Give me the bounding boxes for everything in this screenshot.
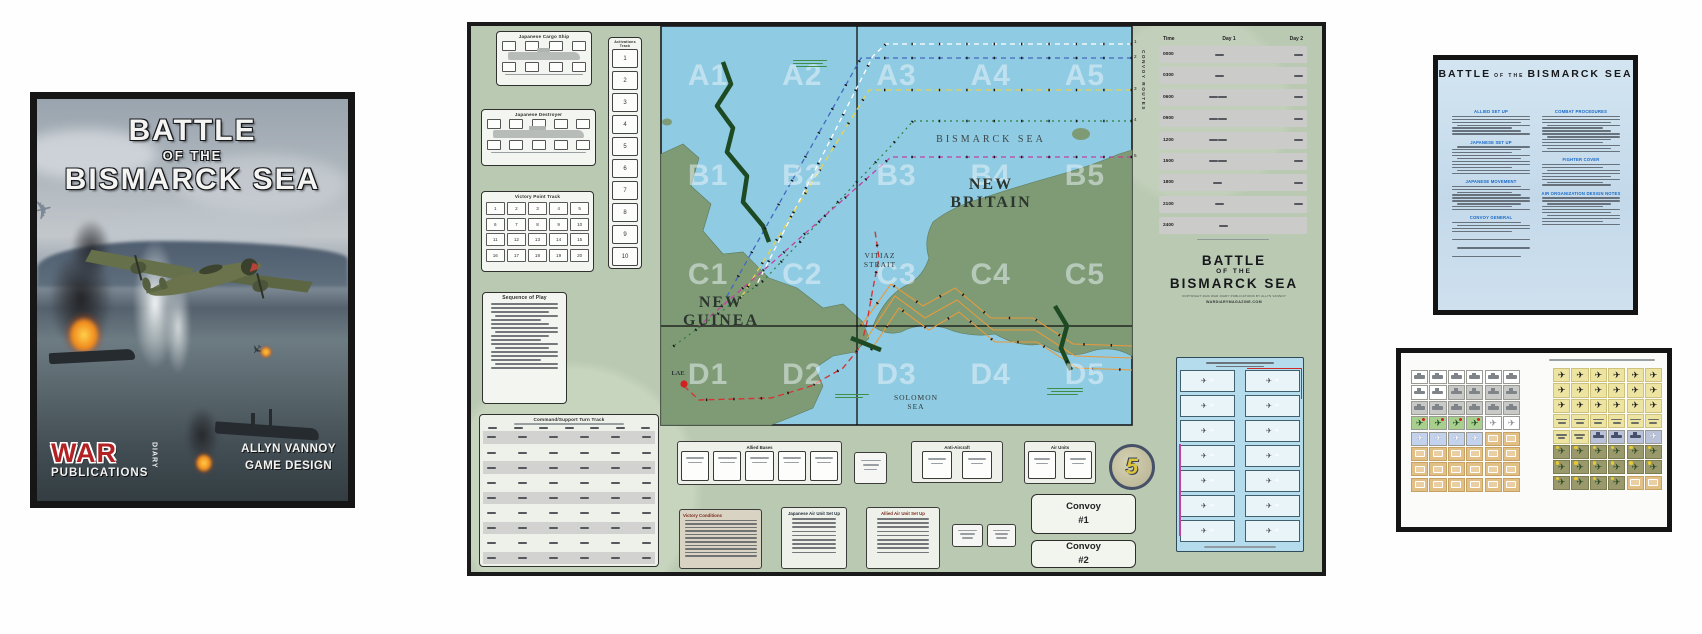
japanese-aircraft-counter: ✈ — [1411, 416, 1428, 430]
aircraft-icon: ✈ — [1201, 503, 1207, 510]
japanese-floatplane-counter: ✈ — [1448, 432, 1465, 446]
allied-aircraft-icon: ✈ — [1650, 401, 1658, 410]
allied-aircraft-icon: ✈ — [1576, 371, 1584, 380]
activations-track-title: Activations Track — [612, 40, 638, 48]
bomber-icon: ✈ — [1595, 478, 1603, 487]
marker-counter — [1553, 414, 1570, 428]
route-number: 2 — [1134, 54, 1137, 59]
allied-bomber-counter: ✈ — [1571, 445, 1588, 459]
barge-icon — [1451, 466, 1461, 473]
ship-icon — [1469, 375, 1480, 379]
turn-record-col-day1: Day 1 — [1189, 36, 1269, 42]
ship-icon — [1506, 375, 1517, 379]
allied-bomber-counter: ✈ — [1645, 460, 1662, 474]
base-box — [713, 451, 741, 481]
vp-cell: 18 — [528, 249, 547, 262]
map-annotation — [793, 58, 827, 67]
command-support-row — [483, 507, 655, 520]
activations-track-cells: 12345678910 — [612, 49, 638, 266]
publisher-logo: WAR PUBLICATIONS DIARY — [51, 440, 157, 479]
barge-icon — [1506, 450, 1516, 457]
rules-title-line1: BATTLE — [1438, 69, 1491, 80]
turn-record-row: 0900 — [1159, 110, 1307, 127]
vp-cell: 11 — [486, 233, 505, 246]
allied-aircraft-counter: ✈ — [1608, 383, 1625, 397]
ship-icon — [1630, 435, 1641, 439]
allied-aircraft-icon: ✈ — [1595, 401, 1603, 410]
cargo-ship-panel: Japanese Cargo Ship — [496, 31, 592, 86]
vp-cell: 12 — [507, 233, 526, 246]
ship-icon — [1414, 406, 1425, 410]
allied-ship-counter — [1627, 430, 1644, 444]
game-map-board: A1A2A3A4A5B1B2B3B4B5C1C2C3C4C5D1D2D3D4D5… — [467, 22, 1326, 576]
solomon-sea-label: SOLOMON SEA — [885, 394, 947, 411]
allied-aircraft-counter: ✈ — [1645, 430, 1662, 444]
allied-aircraft-counter: ✈ — [1553, 368, 1570, 382]
vp-cell: 13 — [528, 233, 547, 246]
japanese-aircraft-icon: ✈ — [1471, 419, 1479, 428]
allied-aircraft-counter: ✈ — [1645, 368, 1662, 382]
allied-bomber-counter: ✈ — [1590, 445, 1607, 459]
cover-title: BATTLE OF THE BISMARCK SEA — [37, 115, 348, 196]
command-support-row — [483, 522, 655, 535]
unit-box — [1028, 451, 1056, 479]
map-title-line3: BISMARCK SEA — [1161, 277, 1307, 291]
vp-cell: 17 — [507, 249, 526, 262]
allied-bases-title: Allied Bases — [681, 445, 838, 450]
allied-bomber-counter: ✈ — [1590, 460, 1607, 474]
barge-icon — [1415, 450, 1425, 457]
convoy-1-number: #1 — [1078, 514, 1089, 528]
rules-heading: Convoy General — [1450, 215, 1532, 220]
bomber-icon: ✈ — [1631, 447, 1639, 456]
arrow-icon: ➔ — [1209, 428, 1214, 434]
japanese-aircraft-icon: ✈ — [1416, 419, 1424, 428]
aircraft-icon: ✈ — [1508, 419, 1516, 428]
barge-icon — [1415, 466, 1425, 473]
barge-counter — [1485, 447, 1502, 461]
air-unit-cell: ✈➔ — [1245, 445, 1300, 467]
sequence-of-play-panel: Sequence of Play — [482, 292, 567, 404]
allied-aircraft-icon: ✈ — [1595, 386, 1603, 395]
air-unit-cell: ✈➔ — [1180, 420, 1235, 442]
command-support-row — [483, 431, 655, 444]
turn-record-col-day2: Day 2 — [1269, 36, 1303, 42]
ship-icon — [1469, 406, 1480, 410]
turn-record-row: 1800 — [1159, 174, 1307, 191]
allied-bomber-counter: ✈ — [1608, 476, 1625, 490]
air-unit-cell: ✈➔ — [1245, 520, 1300, 542]
fire-art — [193, 451, 215, 475]
activation-cell: 8 — [612, 203, 638, 222]
bomber-icon: ✈ — [1650, 463, 1658, 472]
rules-right-column: Combat Procedures Fighter Cover Air Orga… — [1539, 104, 1623, 225]
allied-aircraft-counter: ✈ — [1571, 383, 1588, 397]
marker-counter — [1608, 414, 1625, 428]
bomber-icon: ✈ — [1613, 463, 1621, 472]
arrow-icon: ➔ — [1209, 378, 1214, 384]
map-title-block: BATTLE OF THE BISMARCK SEA COPYRIGHT 202… — [1161, 254, 1307, 304]
vp-cell: 20 — [570, 249, 589, 262]
aircraft-icon: ✈ — [1266, 478, 1272, 485]
barge-icon — [1433, 481, 1443, 488]
air-unit-cell: ✈➔ — [1180, 470, 1235, 492]
barge-icon — [1648, 479, 1658, 486]
barge-counter — [1466, 447, 1483, 461]
allied-bomber-counter: ✈ — [1627, 460, 1644, 474]
allied-aircraft-counter: ✈ — [1627, 383, 1644, 397]
aircraft-icon: ✈ — [1201, 453, 1207, 460]
barge-icon — [1415, 481, 1425, 488]
bomber-icon: ✈ — [1558, 478, 1566, 487]
barge-icon — [1488, 450, 1498, 457]
allied-bomber-counter: ✈ — [1645, 445, 1662, 459]
turn-record-table: Time Day 1 Day 2 0000 0300 0600 0900 120… — [1159, 34, 1307, 240]
barge-counter — [1485, 462, 1502, 476]
barge-counter — [1485, 432, 1502, 446]
cover-title-line1: BATTLE — [37, 115, 348, 147]
command-support-row — [483, 476, 655, 489]
marker-box — [952, 524, 983, 547]
barge-icon — [1470, 450, 1480, 457]
cargo-ship-silhouette — [508, 52, 580, 60]
destroyer-art — [215, 421, 320, 440]
command-support-row — [483, 552, 655, 565]
allied-aircraft-icon: ✈ — [1576, 386, 1584, 395]
convoy-1-label: Convoy — [1066, 500, 1101, 514]
vp-cell: 10 — [570, 218, 589, 231]
air-units-title: Air Units — [1028, 445, 1092, 450]
command-support-row — [483, 492, 655, 505]
air-unit-cell: ✈➔ — [1180, 495, 1235, 517]
barge-icon — [1451, 481, 1461, 488]
convoy-1-box: Convoy #1 — [1031, 494, 1136, 534]
ship-icon — [1488, 375, 1499, 379]
japanese-aircraft-counter: ✈ — [1429, 416, 1446, 430]
rules-title-line2: OF THE — [1494, 74, 1524, 79]
rules-heading: Japanese Movement — [1450, 179, 1532, 184]
rules-heading: Combat Procedures — [1539, 109, 1623, 114]
allied-bomber-counter: ✈ — [1571, 460, 1588, 474]
magenta-bracket — [1179, 444, 1181, 536]
japanese-floatplane-counter: ✈ — [1429, 432, 1446, 446]
aircraft-counter: ✈ — [1503, 416, 1520, 430]
product-gallery: BATTLE OF THE BISMARCK SEA — [0, 0, 1702, 634]
aircraft-icon: ✈ — [1201, 378, 1207, 385]
ship-counter-damaged — [1448, 385, 1465, 399]
allied-aircraft-counter: ✈ — [1627, 399, 1644, 413]
rules-heading: Japanese Set Up — [1450, 140, 1532, 145]
ship-icon — [1506, 406, 1517, 410]
barge-icon — [1630, 479, 1640, 486]
turn-record-row: 0300 — [1159, 67, 1307, 84]
turn-record-header: Time Day 1 Day 2 — [1159, 36, 1307, 42]
air-units-chart: ✈➔✈➔✈➔✈➔✈➔✈➔✈➔✈➔✈➔✈➔✈➔✈➔✈➔✈➔ — [1176, 357, 1304, 552]
ship-icon — [1593, 435, 1604, 439]
air-unit-cell: ✈➔ — [1245, 470, 1300, 492]
ship-counter-damaged — [1448, 401, 1465, 415]
marker-counter — [1645, 414, 1662, 428]
vp-cell: 7 — [507, 218, 526, 231]
barge-counter — [1448, 478, 1465, 492]
ship-counter — [1466, 370, 1483, 384]
publisher-diary-text: DIARY — [150, 442, 157, 469]
vp-cell: 15 — [570, 233, 589, 246]
aircraft-icon: ✈ — [1201, 528, 1207, 535]
destroyer-silhouette — [493, 130, 584, 138]
publisher-publications-text: PUBLICATIONS — [51, 467, 148, 479]
activation-cell: 7 — [612, 181, 638, 200]
vp-cell: 1 — [486, 202, 505, 215]
bomber-icon: ✈ — [1558, 463, 1566, 472]
barge-counter — [1429, 447, 1446, 461]
destroyer-panel: Japanese Destroyer — [481, 109, 596, 166]
ship-icon — [1469, 391, 1480, 395]
activation-cell: 1 — [612, 49, 638, 68]
ship-icon — [1432, 391, 1443, 395]
allied-aircraft-icon: ✈ — [1650, 371, 1658, 380]
allied-aircraft-counter: ✈ — [1627, 368, 1644, 382]
activation-cell: 6 — [612, 159, 638, 178]
turn-record-row: 2100 — [1159, 196, 1307, 213]
ship-counter-damaged — [1466, 385, 1483, 399]
japanese-setup-box: Japanese Air Unit Set Up — [781, 507, 847, 569]
bomber-icon: ✈ — [1576, 478, 1584, 487]
counter-sheet-header — [1549, 359, 1655, 361]
rules-heading: Allied Set Up — [1450, 109, 1532, 114]
base-box — [681, 451, 709, 481]
vp-cell: 8 — [528, 218, 547, 231]
bismarck-sea-label: BISMARCK SEA — [901, 134, 1081, 146]
victory-point-track-panel: Victory Point Track 12345678910111213141… — [481, 191, 594, 272]
allied-aircraft-icon: ✈ — [1558, 386, 1566, 395]
barge-counter — [1627, 476, 1644, 490]
ship-counter — [1503, 370, 1520, 384]
ship-counter — [1448, 370, 1465, 384]
command-support-row — [483, 446, 655, 459]
vp-cell: 2 — [507, 202, 526, 215]
map-title-line2: OF THE — [1161, 269, 1307, 276]
cargo-ship-panel-title: Japanese Cargo Ship — [500, 34, 588, 39]
barge-counter — [1448, 447, 1465, 461]
bomber-icon: ✈ — [1576, 447, 1584, 456]
floatplane-icon: ✈ — [1434, 434, 1442, 443]
aircraft-icon: ✈ — [1201, 478, 1207, 485]
route-number: 3 — [1134, 86, 1137, 91]
allied-aircraft-counter: ✈ — [1608, 368, 1625, 382]
allied-bomber-counter: ✈ — [1608, 460, 1625, 474]
barge-counter — [1645, 476, 1662, 490]
barge-counter — [1503, 478, 1520, 492]
aircraft-icon: ✈ — [1650, 432, 1658, 441]
sequence-of-play-title: Sequence of Play — [486, 295, 563, 301]
convoy-2-number: #2 — [1078, 554, 1089, 568]
route-number: 5 — [1134, 153, 1137, 158]
aircraft-icon: ✈ — [1201, 428, 1207, 435]
ship-counter-damaged — [1466, 401, 1483, 415]
map-title-line1: BATTLE — [1161, 254, 1307, 268]
ship-counter-damaged — [1503, 401, 1520, 415]
turn-record-row: 1500 — [1159, 153, 1307, 170]
air-unit-cell: ✈➔ — [1180, 370, 1235, 392]
b25-bomber-art — [65, 187, 333, 347]
box-cover: BATTLE OF THE BISMARCK SEA — [30, 92, 355, 508]
ship-counter-damaged — [1485, 401, 1502, 415]
barge-counter — [1466, 462, 1483, 476]
designer-name: ALLYN VANNOY — [241, 441, 336, 458]
designer-role: GAME DESIGN — [241, 458, 336, 475]
ship-counter — [1411, 370, 1428, 384]
activation-cell: 9 — [612, 225, 638, 244]
base-box — [810, 451, 838, 481]
barge-counter — [1503, 462, 1520, 476]
ship-icon — [1488, 391, 1499, 395]
barge-icon — [1488, 481, 1498, 488]
air-unit-cell: ✈➔ — [1180, 520, 1235, 542]
rules-title: BATTLE OF THE BISMARCK SEA — [1438, 69, 1633, 80]
arrow-icon: ➔ — [1274, 453, 1279, 459]
new-britain-label: NEW BRITAIN — [926, 176, 1056, 213]
anti-aircraft-title: Anti-Aircraft — [915, 445, 999, 450]
ship-icon — [1611, 435, 1622, 439]
activation-cell: 10 — [612, 247, 638, 266]
vp-cell: 3 — [528, 202, 547, 215]
barge-counter — [1485, 478, 1502, 492]
allied-aircraft-counter: ✈ — [1590, 399, 1607, 413]
ship-counter — [1411, 385, 1428, 399]
aircraft-icon: ✈ — [1266, 528, 1272, 535]
counter-block-ships: ✈✈✈✈ ✈✈ ✈✈✈✈ — [1411, 370, 1520, 493]
bomber-icon: ✈ — [1558, 447, 1566, 456]
barge-counter — [1466, 478, 1483, 492]
allied-bomber-counter: ✈ — [1553, 476, 1570, 490]
vp-cell: 4 — [549, 202, 568, 215]
fifth-air-force-emblem: 5 — [1109, 444, 1155, 490]
allied-bases-box: Allied Bases — [677, 441, 842, 485]
ship-icon — [1506, 391, 1517, 395]
bomber-icon: ✈ — [1595, 447, 1603, 456]
marker-counter — [1553, 430, 1570, 444]
cover-title-line2: OF THE — [37, 149, 348, 163]
allied-bomber-counter: ✈ — [1571, 476, 1588, 490]
activation-cell: 5 — [612, 137, 638, 156]
arrow-icon: ➔ — [1274, 403, 1279, 409]
victory-conditions-box: Victory Conditions — [679, 509, 762, 569]
aa-box — [962, 451, 992, 479]
air-unit-cell: ✈➔ — [1180, 395, 1235, 417]
base-box-single — [854, 452, 887, 484]
allied-aircraft-icon: ✈ — [1613, 386, 1621, 395]
allied-bomber-counter: ✈ — [1553, 460, 1570, 474]
barge-icon — [1506, 435, 1516, 442]
bomber-icon: ✈ — [1650, 447, 1658, 456]
allied-bomber-counter: ✈ — [1590, 476, 1607, 490]
arrow-icon: ➔ — [1274, 528, 1279, 534]
turn-record-row: 2400 — [1159, 217, 1307, 234]
allied-aircraft-counter: ✈ — [1608, 399, 1625, 413]
allied-aircraft-counter: ✈ — [1645, 383, 1662, 397]
ship-counter-damaged — [1411, 401, 1428, 415]
marker-counter — [1571, 430, 1588, 444]
bomber-icon: ✈ — [1631, 463, 1639, 472]
allied-aircraft-icon: ✈ — [1631, 386, 1639, 395]
allied-setup-title: Allied Air Unit Set Up — [870, 511, 936, 516]
allied-aircraft-icon: ✈ — [1650, 386, 1658, 395]
barge-counter — [1448, 462, 1465, 476]
barge-counter — [1503, 447, 1520, 461]
allied-aircraft-counter: ✈ — [1590, 383, 1607, 397]
command-support-row — [483, 461, 655, 474]
allied-aircraft-icon: ✈ — [1558, 401, 1566, 410]
barge-icon — [1506, 481, 1516, 488]
barge-icon — [1470, 466, 1480, 473]
floatplane-icon: ✈ — [1471, 434, 1479, 443]
air-units-box: Air Units — [1024, 441, 1096, 484]
rules-heading: Air Organization Design Notes — [1539, 191, 1623, 196]
map-website: WARDIARYMAGAZINE.COM — [1161, 300, 1307, 304]
ship-icon — [1414, 391, 1425, 395]
ship-counter-damaged — [1485, 385, 1502, 399]
arrow-icon: ➔ — [1274, 503, 1279, 509]
ship-icon — [1451, 406, 1462, 410]
arrow-icon: ➔ — [1209, 478, 1214, 484]
allied-aircraft-icon: ✈ — [1613, 371, 1621, 380]
air-units-chart-grid: ✈➔✈➔✈➔✈➔✈➔✈➔✈➔✈➔✈➔✈➔✈➔✈➔✈➔✈➔ — [1180, 370, 1300, 542]
arrow-icon: ➔ — [1274, 428, 1279, 434]
air-unit-cell: ✈➔ — [1245, 420, 1300, 442]
allied-aircraft-icon: ✈ — [1631, 371, 1639, 380]
aircraft-icon: ✈ — [1266, 503, 1272, 510]
marker-box — [987, 524, 1016, 547]
vp-cell: 14 — [549, 233, 568, 246]
destroyer-mast-art — [269, 409, 272, 427]
vp-cell: 9 — [549, 218, 568, 231]
destroyer-mast-art — [251, 413, 255, 427]
unit-box — [1064, 451, 1092, 479]
lae-label: LAE — [667, 370, 689, 377]
ship-icon — [1451, 375, 1462, 379]
victory-conditions-title: Victory Conditions — [683, 513, 758, 518]
aircraft-icon: ✈ — [1489, 419, 1497, 428]
emblem-number: 5 — [1126, 454, 1138, 480]
vp-cell: 16 — [486, 249, 505, 262]
command-support-track-title: Command/Support Turn Track — [483, 417, 655, 422]
convoy-2-label: Convoy — [1066, 540, 1101, 554]
japanese-floatplane-counter: ✈ — [1411, 432, 1428, 446]
allied-aircraft-counter: ✈ — [1590, 368, 1607, 382]
anti-aircraft-box: Anti-Aircraft — [911, 441, 1003, 483]
activation-cell: 3 — [612, 93, 638, 112]
air-unit-cell: ✈➔ — [1245, 495, 1300, 517]
new-guinea-label: NEW GUINEA — [667, 294, 775, 331]
allied-ship-counter — [1608, 430, 1625, 444]
rules-left-column: Allied Set Up Japanese Set Up Japanese M… — [1450, 104, 1532, 257]
turn-record-row: 0600 — [1159, 89, 1307, 106]
arrow-icon: ➔ — [1209, 403, 1214, 409]
counter-block-aircraft: ✈✈✈✈✈✈ ✈✈✈✈✈✈ ✈✈✈✈✈✈ ✈ ✈✈✈✈✈✈ ✈✈✈✈✈✈ ✈✈✈… — [1553, 368, 1662, 491]
japanese-floatplane-counter: ✈ — [1466, 432, 1483, 446]
ship-icon — [1488, 406, 1499, 410]
rules-sheet: BATTLE OF THE BISMARCK SEA Allied Set Up… — [1433, 55, 1638, 315]
barge-counter — [1411, 478, 1428, 492]
fire-art — [259, 345, 273, 359]
arrow-icon: ➔ — [1209, 503, 1214, 509]
map-annotation — [835, 392, 869, 398]
japanese-aircraft-icon: ✈ — [1434, 419, 1442, 428]
activation-cell: 2 — [612, 71, 638, 90]
rules-title-line3: BISMARCK SEA — [1527, 69, 1632, 80]
allied-bomber-counter: ✈ — [1553, 445, 1570, 459]
